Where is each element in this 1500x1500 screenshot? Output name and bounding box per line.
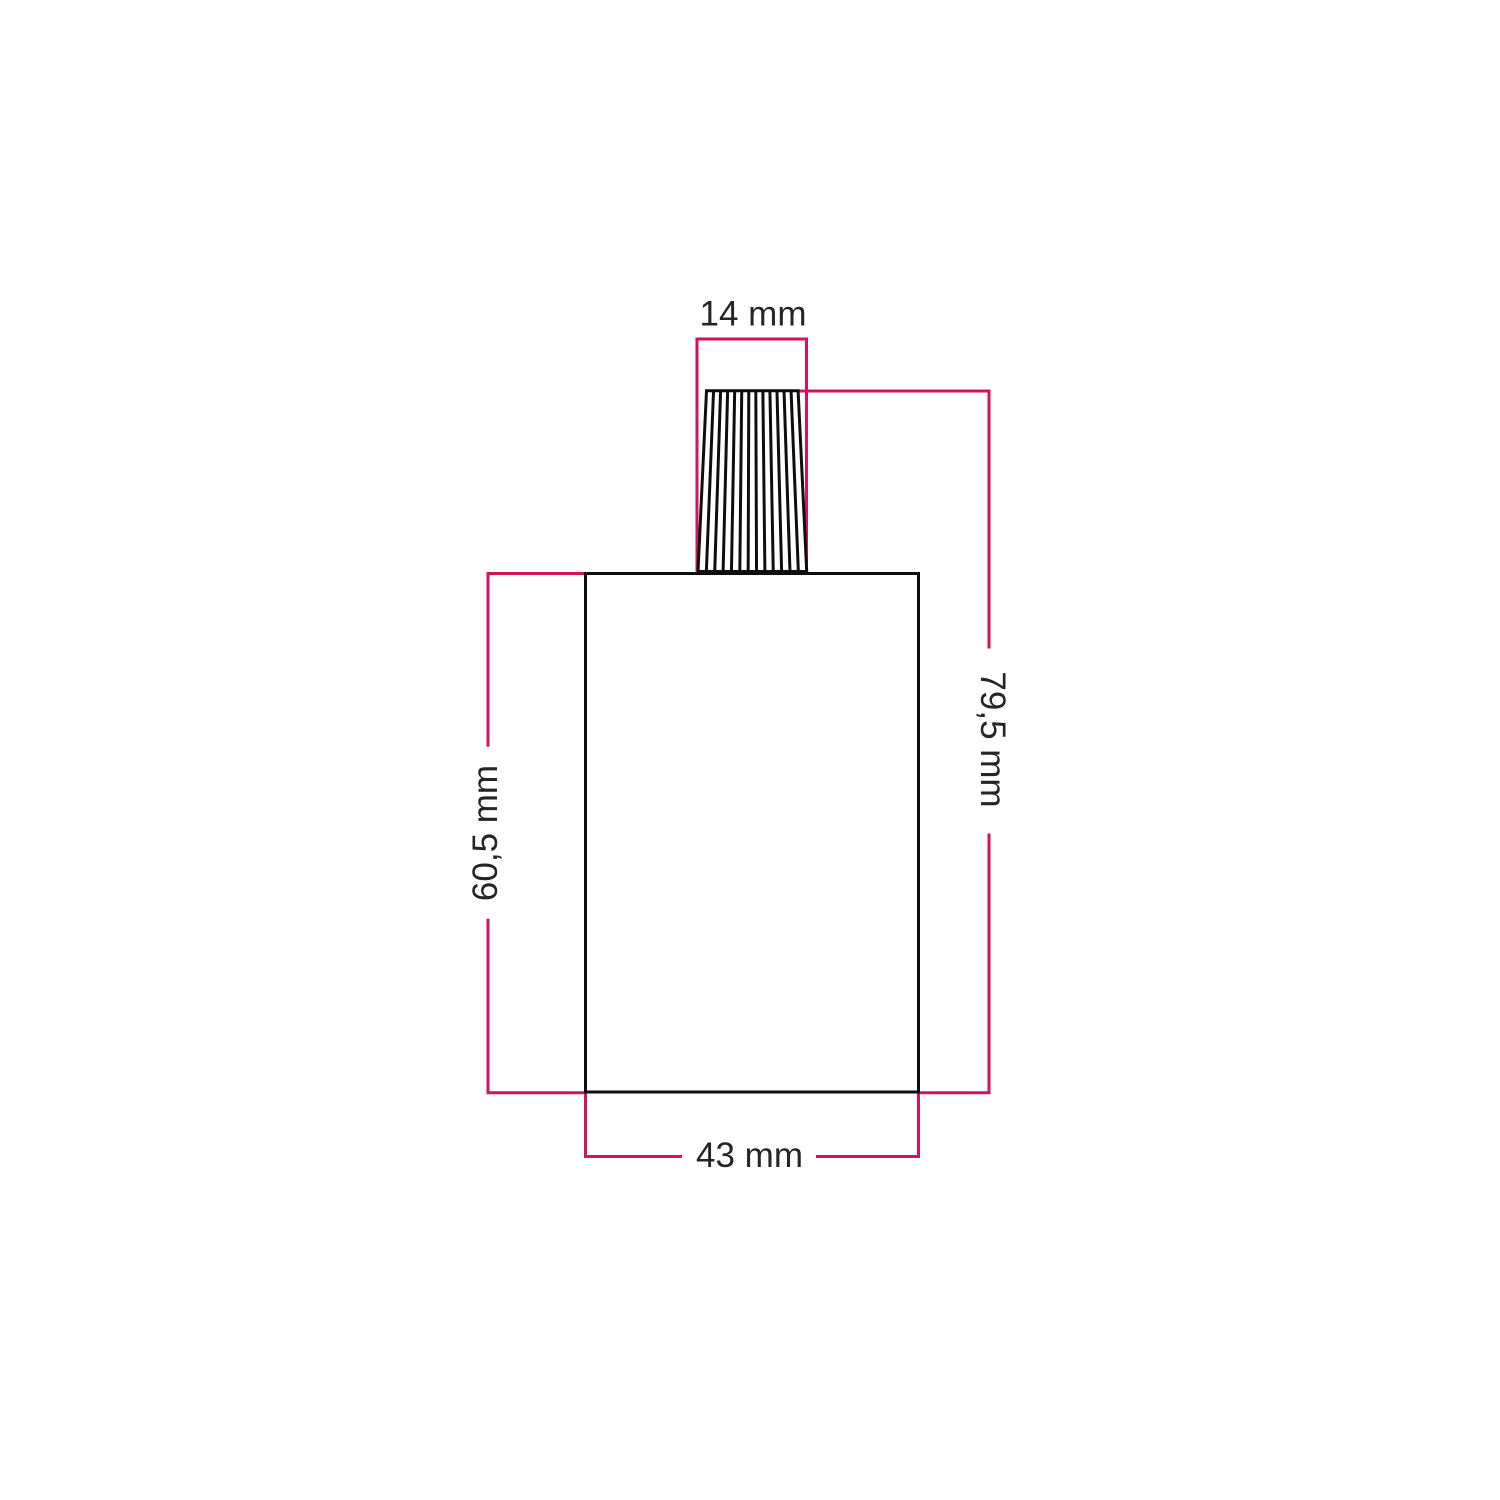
svg-text:14 mm: 14 mm [700,295,807,334]
svg-text:79,5 mm: 79,5 mm [973,671,1012,807]
svg-text:60,5 mm: 60,5 mm [466,765,505,901]
svg-text:43 mm: 43 mm [696,1136,803,1175]
